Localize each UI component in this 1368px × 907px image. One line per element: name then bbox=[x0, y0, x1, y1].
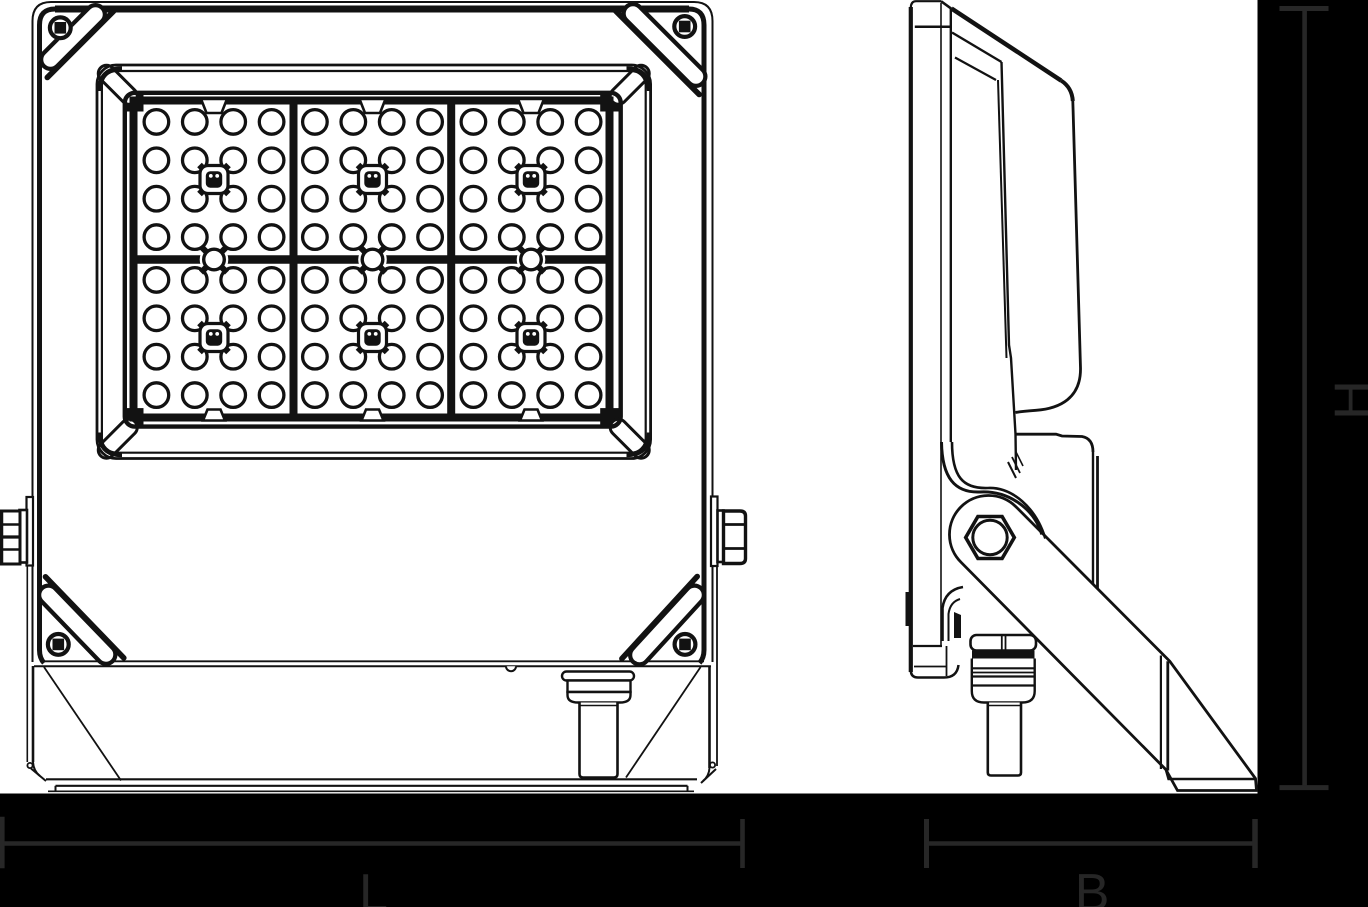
svg-text:B: B bbox=[1075, 864, 1110, 907]
svg-text:H: H bbox=[1326, 380, 1368, 420]
svg-text:L: L bbox=[359, 864, 388, 907]
